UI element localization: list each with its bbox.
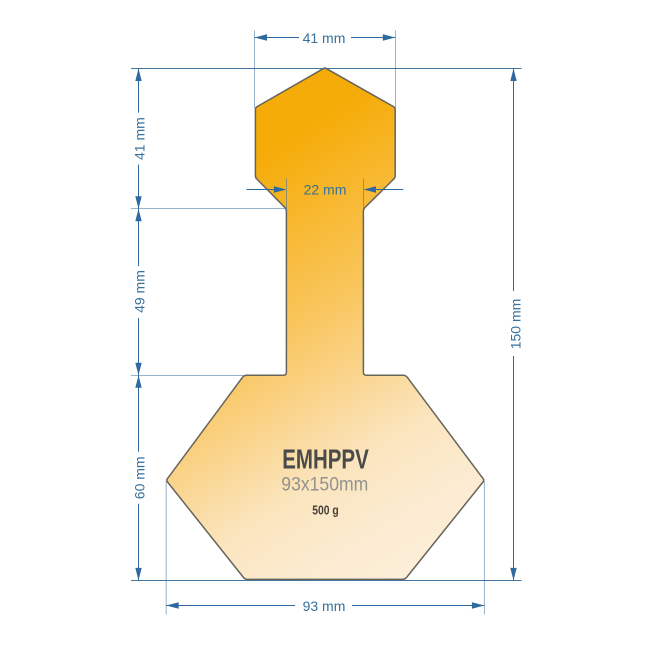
svg-text:93 mm: 93 mm (303, 598, 346, 614)
svg-text:22 mm: 22 mm (304, 182, 347, 198)
svg-text:500 g: 500 g (312, 503, 339, 518)
svg-text:60 mm: 60 mm (132, 456, 148, 499)
svg-text:150 mm: 150 mm (508, 299, 524, 350)
svg-text:EMHPPV: EMHPPV (282, 444, 369, 475)
svg-text:41 mm: 41 mm (132, 117, 148, 160)
svg-text:49 mm: 49 mm (132, 270, 148, 313)
svg-text:93x150mm: 93x150mm (281, 474, 368, 496)
svg-text:41 mm: 41 mm (303, 30, 346, 46)
